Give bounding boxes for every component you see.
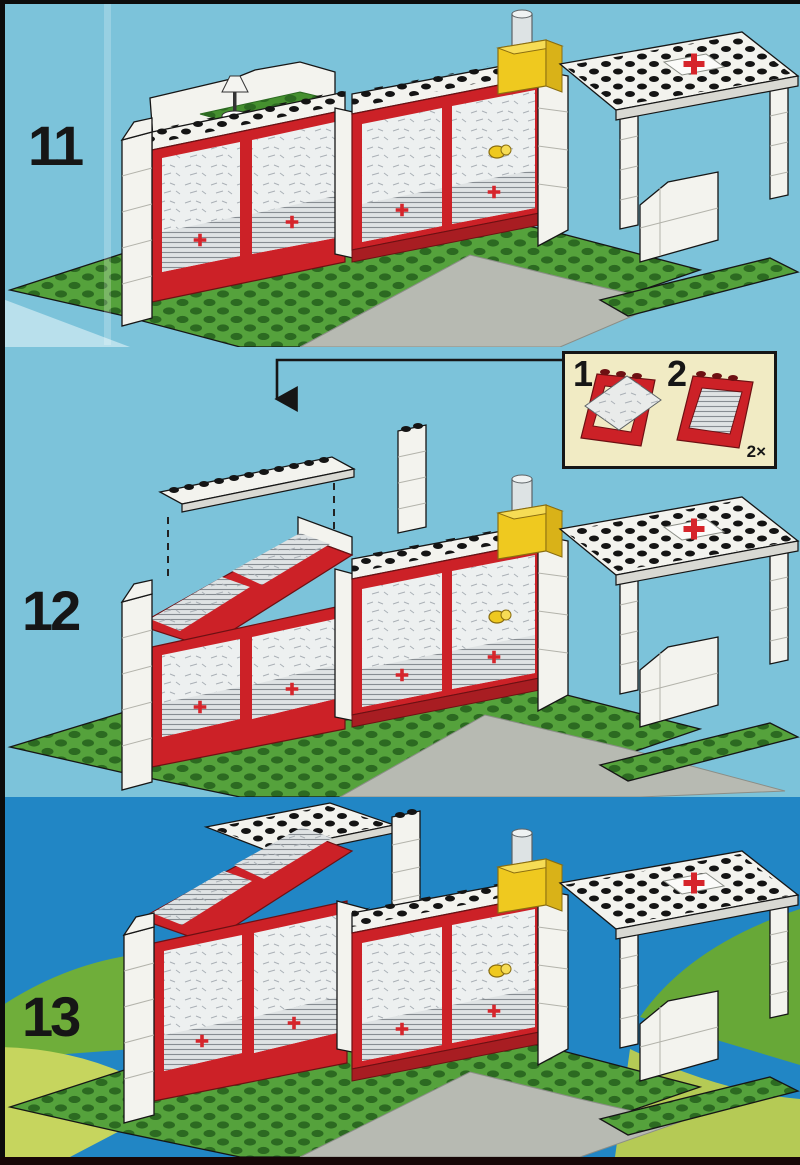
step-13-number: 13 <box>22 989 78 1045</box>
inset-substep-1-label: 1 <box>573 356 593 392</box>
inset-quantity-label: 2× <box>747 442 766 462</box>
insert-arrow-icon <box>277 360 562 399</box>
carport-roof <box>560 497 798 585</box>
parts-inset-box: 1 2 2× <box>562 351 777 469</box>
page-edge-top <box>0 0 800 4</box>
beacon-light <box>498 475 562 559</box>
beacon-light <box>498 10 562 94</box>
step-11-panel: 11 <box>0 0 800 347</box>
inset-substep-2-label: 2 <box>667 356 687 392</box>
lego-instruction-page: 11 <box>0 0 800 1165</box>
page-edge-left <box>0 0 5 1165</box>
page-edge-bottom <box>0 1157 800 1165</box>
step-13-panel: 13 <box>0 797 800 1157</box>
step-13-illustration <box>0 797 800 1157</box>
beacon-light <box>498 829 562 913</box>
carport-side-wall <box>640 637 718 727</box>
scan-crease <box>104 0 111 345</box>
step-11-number: 11 <box>28 118 81 174</box>
step-12-number: 12 <box>22 583 78 639</box>
step-11-illustration <box>0 0 800 347</box>
inset-window-closed <box>677 371 753 448</box>
floating-plate <box>160 457 354 512</box>
step-12-panel: 12 1 2 2× <box>0 347 800 797</box>
carport-roof <box>560 32 798 120</box>
chimney <box>398 423 426 533</box>
carport-side-wall <box>640 172 718 262</box>
